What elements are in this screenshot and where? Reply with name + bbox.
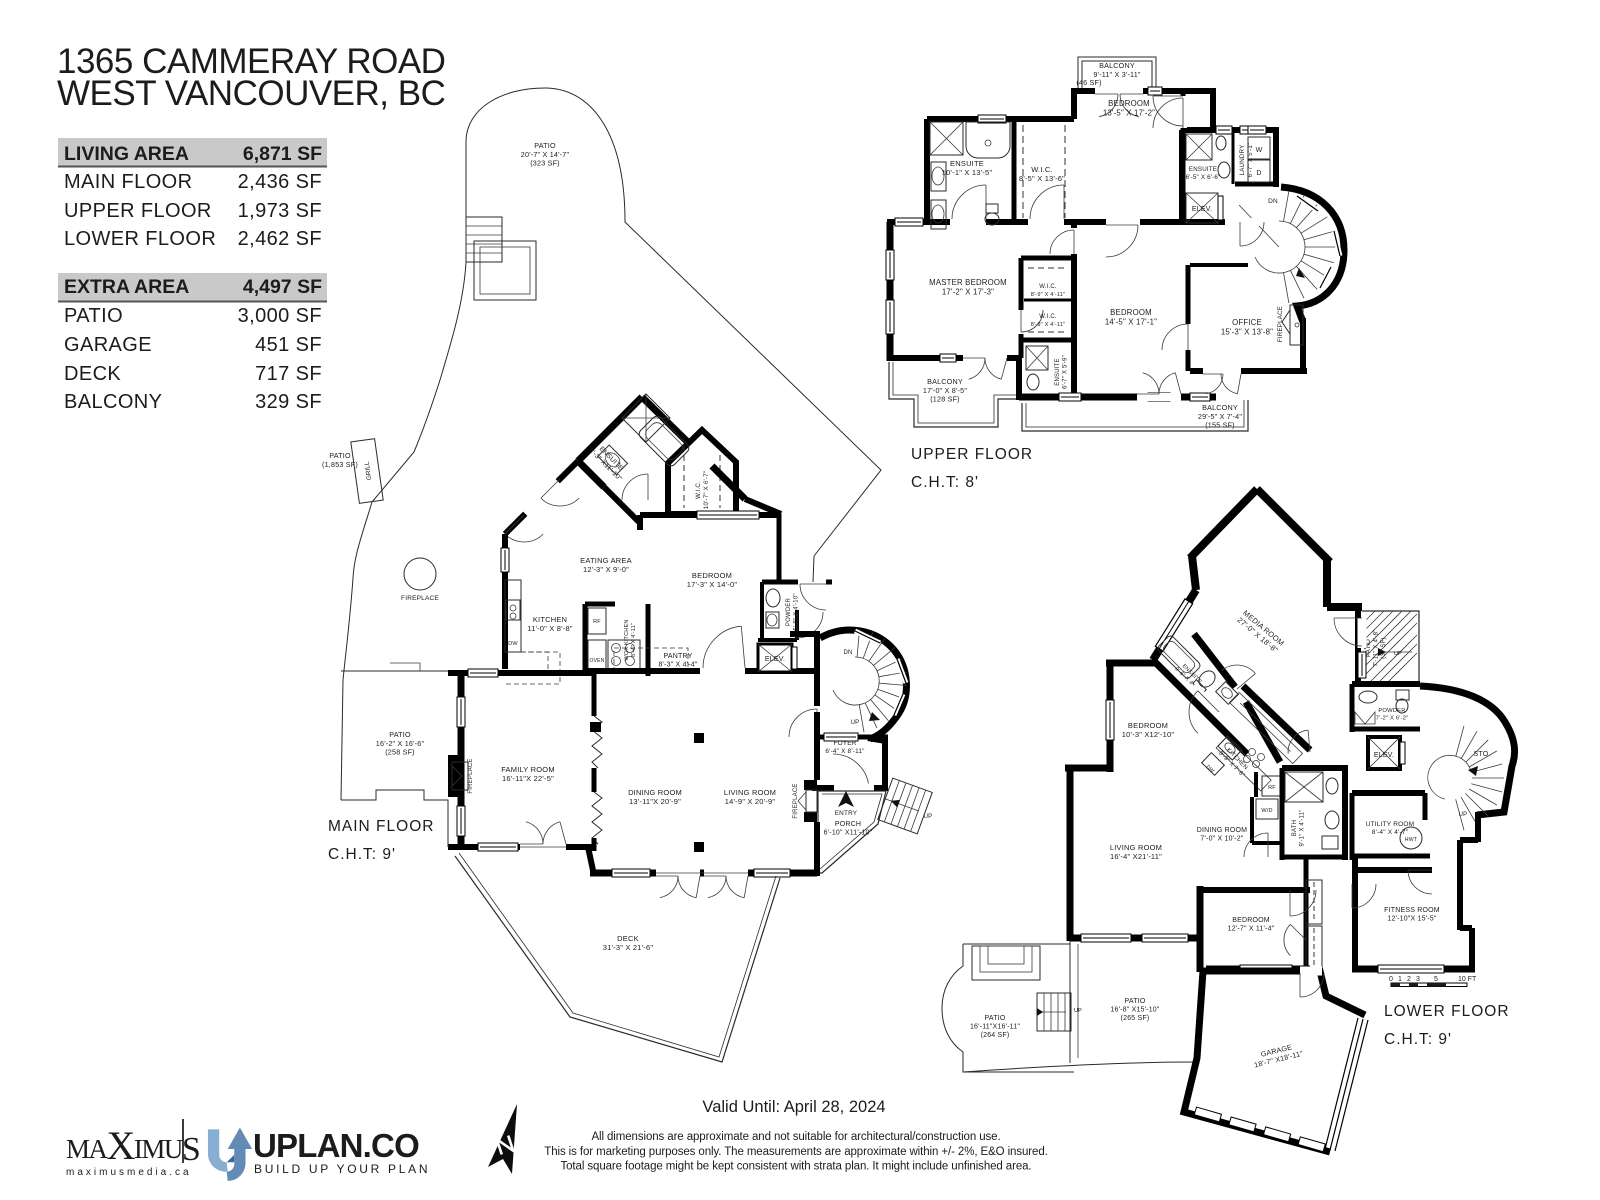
- svg-text:DN: DN: [843, 650, 852, 656]
- svg-text:EXTRA AREA: EXTRA AREA: [64, 276, 189, 298]
- svg-text:ENSUITE6'-5" X 6'-6": ENSUITE6'-5" X 6'-6": [1186, 166, 1221, 181]
- svg-text:1: 1: [1398, 976, 1402, 983]
- svg-text:FAMILY ROOM16'-11"X 22'-5": FAMILY ROOM16'-11"X 22'-5": [501, 765, 555, 783]
- svg-text:FIREPLACE: FIREPLACE: [468, 758, 474, 793]
- svg-text:UP: UP: [1394, 651, 1402, 657]
- svg-text:UPLAN.CO: UPLAN.CO: [253, 1127, 419, 1164]
- svg-text:BEDROOM10'-3" X12'-10": BEDROOM10'-3" X12'-10": [1122, 721, 1175, 739]
- svg-text:MAIN FLOOR: MAIN FLOOR: [64, 171, 192, 193]
- svg-text:2,462 SF: 2,462 SF: [238, 228, 322, 250]
- svg-text:W.I.C.: W.I.C.: [1039, 284, 1057, 290]
- svg-text:1,973 SF: 1,973 SF: [238, 200, 322, 222]
- svg-text:LIVING ROOM16'-4" X21'-11": LIVING ROOM16'-4" X21'-11": [1110, 843, 1162, 861]
- svg-text:BEDROOM13'-5" X 17'-2": BEDROOM13'-5" X 17'-2": [1103, 99, 1155, 117]
- svg-text:LIVING AREA: LIVING AREA: [64, 143, 189, 165]
- svg-text:UPPER FLOOR: UPPER FLOOR: [64, 200, 212, 222]
- svg-text:Valid Until: April 28, 2024: Valid Until: April 28, 2024: [702, 1098, 885, 1116]
- svg-text:BEDROOM12'-7" X 11'-4": BEDROOM12'-7" X 11'-4": [1228, 917, 1275, 933]
- svg-text:8'-9" X 4'-11": 8'-9" X 4'-11": [1031, 322, 1066, 328]
- svg-text:W/D: W/D: [1261, 808, 1272, 814]
- svg-text:HWT: HWT: [1405, 837, 1418, 843]
- svg-text:UP: UP: [851, 720, 860, 726]
- svg-text:ENTRY: ENTRY: [835, 810, 858, 817]
- svg-text:LOWER FLOOR: LOWER FLOOR: [64, 228, 216, 250]
- svg-text:0: 0: [1389, 976, 1393, 983]
- svg-text:maximusmedia.ca: maximusmedia.ca: [66, 1167, 192, 1178]
- svg-text:2: 2: [1407, 976, 1411, 983]
- svg-text:2,436 SF: 2,436 SF: [238, 171, 322, 193]
- svg-text:LOWER FLOOR: LOWER FLOOR: [1384, 1003, 1510, 1020]
- svg-text:WEST VANCOUVER, BC: WEST VANCOUVER, BC: [57, 74, 445, 113]
- svg-text:PATIO: PATIO: [64, 305, 123, 327]
- svg-text:BALCONY: BALCONY: [64, 391, 162, 413]
- svg-text:ELEV.: ELEV.: [1374, 752, 1394, 759]
- svg-text:WOK KITCHEN8'-4" X 4'-11": WOK KITCHEN8'-4" X 4'-11": [624, 619, 637, 660]
- svg-text:FITNESS ROOM12'-10"X 15'-5": FITNESS ROOM12'-10"X 15'-5": [1384, 907, 1440, 923]
- svg-text:717 SF: 717 SF: [255, 363, 322, 385]
- svg-text:451 SF: 451 SF: [255, 334, 322, 356]
- svg-text:DINING ROOM13'-11"X 20'-9": DINING ROOM13'-11"X 20'-9": [628, 788, 682, 806]
- svg-text:BUILD UP YOUR PLAN: BUILD UP YOUR PLAN: [254, 1162, 430, 1176]
- svg-text:8'-9" X 4'-11": 8'-9" X 4'-11": [1031, 292, 1066, 298]
- svg-text:RF: RF: [1268, 785, 1276, 791]
- svg-text:6,871 SF: 6,871 SF: [243, 143, 322, 165]
- svg-text:UP: UP: [1074, 1008, 1082, 1014]
- svg-text:BEDROOM14'-5" X 17'-1": BEDROOM14'-5" X 17'-1": [1105, 308, 1157, 326]
- svg-text:DINING ROOM7'-0" X 10'-2": DINING ROOM7'-0" X 10'-2": [1197, 827, 1247, 843]
- svg-text:EATING AREA12'-3" X 9'-0": EATING AREA12'-3" X 9'-0": [580, 556, 632, 574]
- svg-text:PANTRY8'-3" X 4'-4": PANTRY8'-3" X 4'-4": [658, 653, 697, 669]
- svg-text:C.H.T: 9': C.H.T: 9': [1384, 1031, 1452, 1048]
- svg-text:ELEV.: ELEV.: [765, 656, 785, 663]
- svg-text:BEDROOM17'-3" X 14'-0": BEDROOM17'-3" X 14'-0": [687, 571, 738, 589]
- svg-text:C.H.T: 9': C.H.T: 9': [328, 846, 396, 863]
- svg-text:GARAGE: GARAGE: [64, 334, 152, 356]
- svg-text:POWDER7'-2" X 6'-2": POWDER7'-2" X 6'-2": [1376, 708, 1409, 721]
- svg-text:3: 3: [1416, 976, 1420, 983]
- svg-text:UP: UP: [924, 814, 933, 820]
- svg-text:LIVING ROOM14'-9" X 20'-9": LIVING ROOM14'-9" X 20'-9": [724, 788, 776, 806]
- svg-text:3,000 SF: 3,000 SF: [238, 305, 322, 327]
- svg-text:4,497 SF: 4,497 SF: [243, 276, 322, 298]
- svg-text:W.I.C.: W.I.C.: [1039, 314, 1057, 320]
- svg-text:Total square footage might be: Total square footage might be kept consi…: [560, 1161, 1031, 1173]
- svg-text:10 FT: 10 FT: [1458, 976, 1477, 983]
- svg-text:(46 SF): (46 SF): [1076, 78, 1101, 87]
- svg-text:UTILITY ROOM8'-4" X 4'-7": UTILITY ROOM8'-4" X 4'-7": [1366, 821, 1415, 836]
- svg-text:RF: RF: [593, 619, 601, 625]
- svg-text:ELEV.: ELEV.: [1192, 206, 1212, 213]
- svg-text:UP: UP: [1459, 812, 1468, 818]
- svg-text:FIREPLACE: FIREPLACE: [1277, 306, 1284, 342]
- svg-text:5: 5: [1434, 976, 1438, 983]
- svg-text:BALCONY9'-11" X 3'-11": BALCONY9'-11" X 3'-11": [1093, 61, 1141, 79]
- svg-text:DECK: DECK: [64, 363, 121, 385]
- svg-text:UPPER FLOOR: UPPER FLOOR: [911, 446, 1033, 463]
- svg-text:KITCHEN11'-0" X 8'-8": KITCHEN11'-0" X 8'-8": [527, 615, 573, 633]
- svg-text:D: D: [1256, 170, 1261, 177]
- svg-text:C.H.T: 8': C.H.T: 8': [911, 474, 979, 491]
- svg-text:DN: DN: [1268, 198, 1278, 205]
- svg-text:FIREPLACE: FIREPLACE: [401, 595, 439, 602]
- svg-text:DW: DW: [508, 641, 518, 647]
- svg-text:FIREPLACE: FIREPLACE: [793, 783, 799, 818]
- svg-text:LAUNDRY6'-7" X 5'-1": LAUNDRY6'-7" X 5'-1": [1239, 143, 1254, 178]
- svg-text:OVEN: OVEN: [590, 658, 605, 664]
- svg-text:All dimensions are approximate: All dimensions are approximate and not s…: [591, 1131, 1000, 1143]
- svg-text:W: W: [1256, 147, 1263, 154]
- svg-text:MAIN FLOOR: MAIN FLOOR: [328, 818, 434, 835]
- svg-text:ENSUITE6'-7" X 5'-9": ENSUITE6'-7" X 5'-9": [1055, 355, 1069, 389]
- svg-text:329 SF: 329 SF: [255, 391, 322, 413]
- svg-text:This is for marketing purposes: This is for marketing purposes only. The…: [544, 1146, 1047, 1158]
